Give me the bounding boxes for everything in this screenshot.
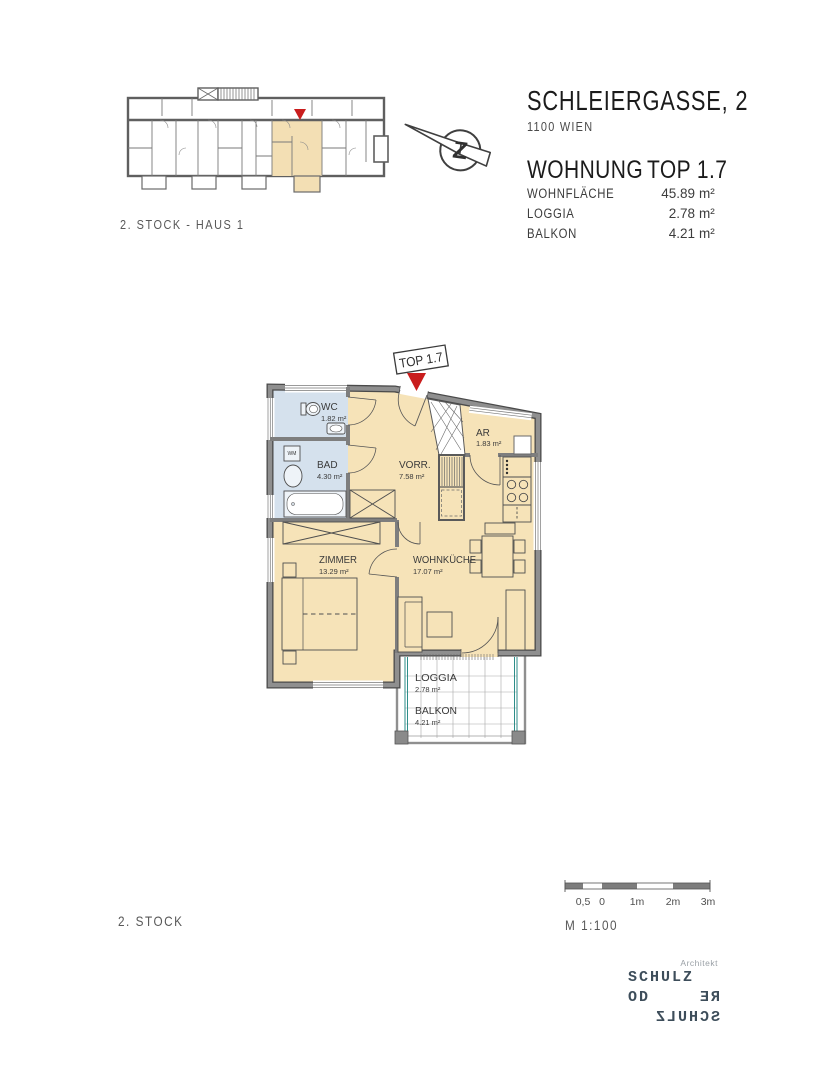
logo-text-mirrored: SCHULZ — [628, 1008, 720, 1028]
room-name-loggia: LOGGIA — [415, 673, 457, 684]
wardrobe-zimmer — [283, 522, 380, 544]
overview-outline — [128, 88, 388, 189]
ar-shaft-box — [514, 436, 531, 454]
area-unit: m² — [699, 206, 715, 221]
scale-caption: M 1:100 — [565, 917, 628, 935]
bed-icon — [282, 578, 357, 650]
floor-caption-text: 2. STOCK — [118, 913, 183, 929]
scale-tick: 0 — [599, 896, 605, 908]
room-area-loggia: 2.78 m² — [415, 685, 441, 694]
window-left-1 — [266, 398, 275, 440]
floor-caption: 2. STOCK — [118, 913, 196, 931]
area-unit: m² — [699, 186, 715, 201]
shaft-block — [439, 455, 464, 520]
wc-sink-icon — [327, 423, 345, 434]
bad-sink-icon — [284, 465, 302, 487]
toilet-icon — [301, 403, 320, 416]
room-name-ar: AR — [476, 428, 490, 439]
scale-bar: 0,5 0 1m 2m 3m — [563, 878, 715, 916]
unit-number: TOP 1.7 — [647, 156, 727, 185]
scale-segment — [565, 883, 583, 889]
zimmer-furniture — [282, 563, 357, 664]
area-value: 4.21 — [669, 226, 695, 241]
balcony-post-left — [395, 731, 408, 744]
room-name-zimmer: ZIMMER — [319, 555, 357, 566]
logo-line-2: OD RE — [628, 988, 720, 1008]
room-name-wc: WC — [321, 402, 338, 413]
nightstand-icon — [283, 563, 296, 577]
area-row-wohnflaeche: WOHNFLÄCHE 45.89 m² — [527, 186, 719, 206]
area-value: 2.78 — [669, 206, 695, 221]
scale-segment — [673, 883, 710, 889]
room-name-bad: BAD — [317, 460, 338, 471]
logo-line-1: SCHULZ — [628, 968, 720, 988]
sideboard-icon — [506, 590, 525, 650]
logo-line-3: SCHULZ — [628, 1008, 720, 1028]
area-row-balkon: BALKON 4.21 m² — [527, 226, 719, 246]
logo-text: SCHULZ — [628, 968, 694, 988]
unit-title-row: WOHNUNG TOP 1.7 — [527, 156, 719, 182]
header-block: SCHLEIERGASSE, 2 1100 WIEN WOHNUNG TOP 1… — [527, 85, 811, 246]
room-area-wohnkueche: 17.07 m² — [413, 567, 443, 576]
overview-caption-text: 2. STOCK - HAUS 1 — [120, 217, 244, 232]
unit-label: WOHNUNG — [527, 156, 643, 185]
kitchen-block — [503, 457, 531, 522]
plan-sheet: 2. STOCK - HAUS 1 Z SCHLEIERGASSE, 2 110… — [0, 0, 835, 1080]
page-subtitle: 1100 WIEN — [527, 119, 593, 134]
north-arrow-icon: Z — [398, 110, 506, 202]
room-area-wc: 1.82 m² — [321, 414, 347, 423]
logo-text-mirrored: RE — [698, 988, 720, 1008]
wardrobe-vorraum — [350, 490, 395, 518]
scale-tick: 0,5 — [576, 896, 591, 908]
nightstand-icon — [283, 651, 296, 664]
coffee-table-icon — [427, 612, 452, 637]
overview-caption: 2. STOCK - HAUS 1 — [120, 216, 268, 234]
architect-logo: Architekt SCHULZ OD RE SCHULZ — [628, 958, 720, 1028]
room-area-zimmer: 13.29 m² — [319, 567, 349, 576]
window-right — [534, 462, 543, 550]
room-name-vorraum: VORR. — [399, 460, 431, 471]
window-left-3 — [266, 538, 275, 582]
window-top-wc — [285, 384, 347, 393]
area-row-loggia: LOGGIA 2.78 m² — [527, 206, 719, 226]
bathtub-icon — [284, 491, 346, 517]
building-overview-plan — [122, 86, 390, 198]
overview-highlighted-unit — [272, 121, 322, 192]
area-unit: m² — [699, 226, 715, 241]
area-label: LOGGIA — [527, 206, 575, 221]
window-bottom-zimmer — [313, 681, 383, 690]
architect-profession: Architekt — [628, 958, 720, 968]
scale-segment — [602, 883, 637, 889]
room-area-bad: 4.30 m² — [317, 472, 343, 481]
balcony-area — [395, 653, 525, 744]
area-value: 45.89 — [661, 186, 695, 201]
scale-tick: 2m — [666, 896, 681, 908]
scale-tick-labels: 0,5 0 1m 2m 3m — [576, 896, 715, 908]
room-area-vorraum: 7.58 m² — [399, 472, 425, 481]
unit-tag: TOP 1.7 — [394, 345, 449, 391]
area-label: WOHNFLÄCHE — [527, 186, 614, 201]
room-name-wohnkueche: WOHNKÜCHE — [413, 554, 476, 566]
scale-caption-text: M 1:100 — [565, 917, 618, 933]
logo-text: OD — [628, 988, 650, 1008]
washing-machine-label: WM — [288, 451, 297, 457]
scale-tick: 3m — [701, 896, 715, 908]
overview-balconies — [142, 176, 266, 189]
room-area-balkon: 4.21 m² — [415, 718, 441, 727]
room-name-balkon: BALKON — [415, 706, 457, 717]
unit-floor-plan: WM — [255, 342, 555, 764]
balcony-post-right — [512, 731, 525, 744]
page-title: SCHLEIERGASSE, 2 — [527, 85, 748, 117]
area-table: WOHNFLÄCHE 45.89 m² LOGGIA 2.78 m² BALKO… — [527, 186, 811, 246]
washing-machine-icon: WM — [284, 446, 300, 461]
room-area-ar: 1.83 m² — [476, 439, 502, 448]
window-left-2 — [266, 495, 275, 518]
scale-tick: 1m — [630, 896, 645, 908]
area-label: BALKON — [527, 226, 577, 241]
sofa-icon — [398, 597, 422, 652]
